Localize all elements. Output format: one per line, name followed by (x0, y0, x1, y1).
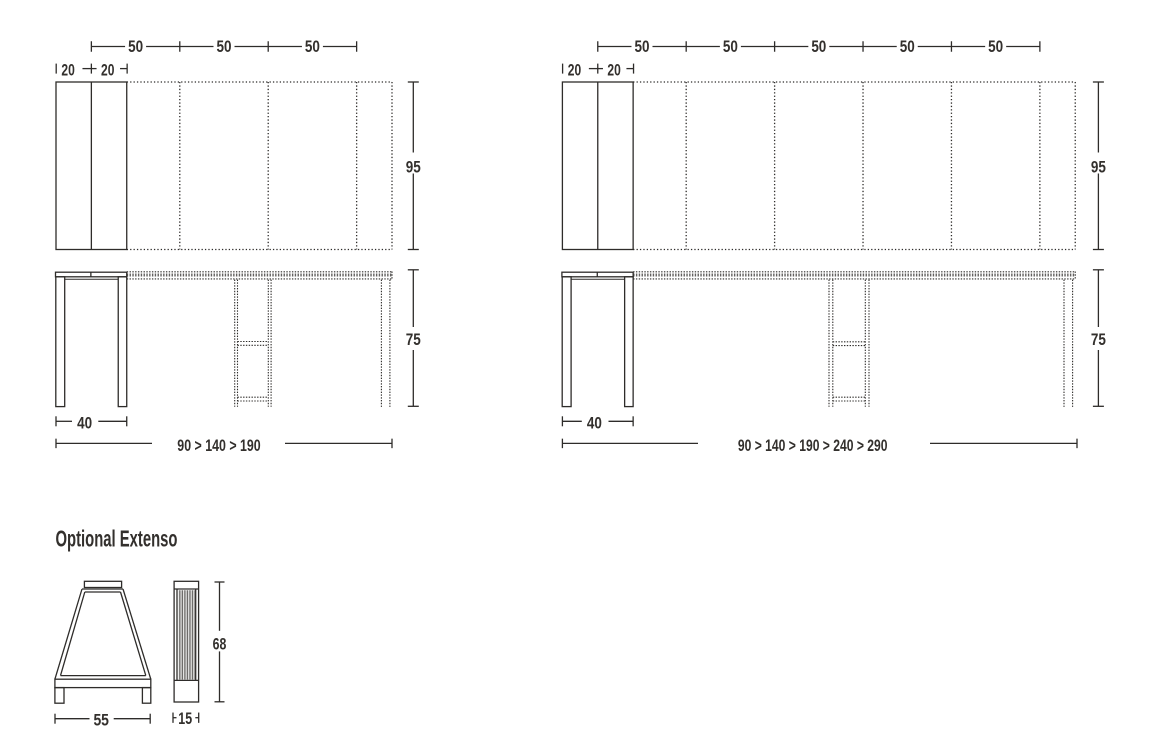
svg-text:40: 40 (587, 413, 602, 432)
svg-text:Optional Extenso: Optional Extenso (56, 526, 178, 552)
svg-text:75: 75 (406, 330, 421, 349)
svg-text:20: 20 (568, 60, 581, 79)
svg-text:55: 55 (93, 710, 109, 729)
svg-text:40: 40 (77, 414, 92, 433)
svg-text:95: 95 (406, 157, 421, 176)
svg-text:20: 20 (607, 60, 620, 79)
svg-text:50: 50 (900, 37, 915, 56)
svg-text:90 > 140 > 190 > 240 > 290: 90 > 140 > 190 > 240 > 290 (738, 436, 888, 455)
svg-text:50: 50 (988, 37, 1003, 56)
svg-text:50: 50 (305, 37, 320, 56)
svg-text:20: 20 (101, 60, 114, 79)
svg-text:50: 50 (128, 37, 143, 56)
svg-text:15: 15 (178, 709, 192, 728)
svg-text:95: 95 (1091, 157, 1106, 176)
svg-text:75: 75 (1091, 330, 1106, 349)
svg-text:50: 50 (217, 37, 232, 56)
svg-text:90 > 140 > 190: 90 > 140 > 190 (177, 436, 260, 455)
svg-text:50: 50 (811, 37, 826, 56)
svg-text:50: 50 (723, 37, 738, 56)
svg-text:20: 20 (61, 60, 74, 79)
svg-text:50: 50 (634, 37, 649, 56)
svg-text:68: 68 (213, 634, 227, 653)
